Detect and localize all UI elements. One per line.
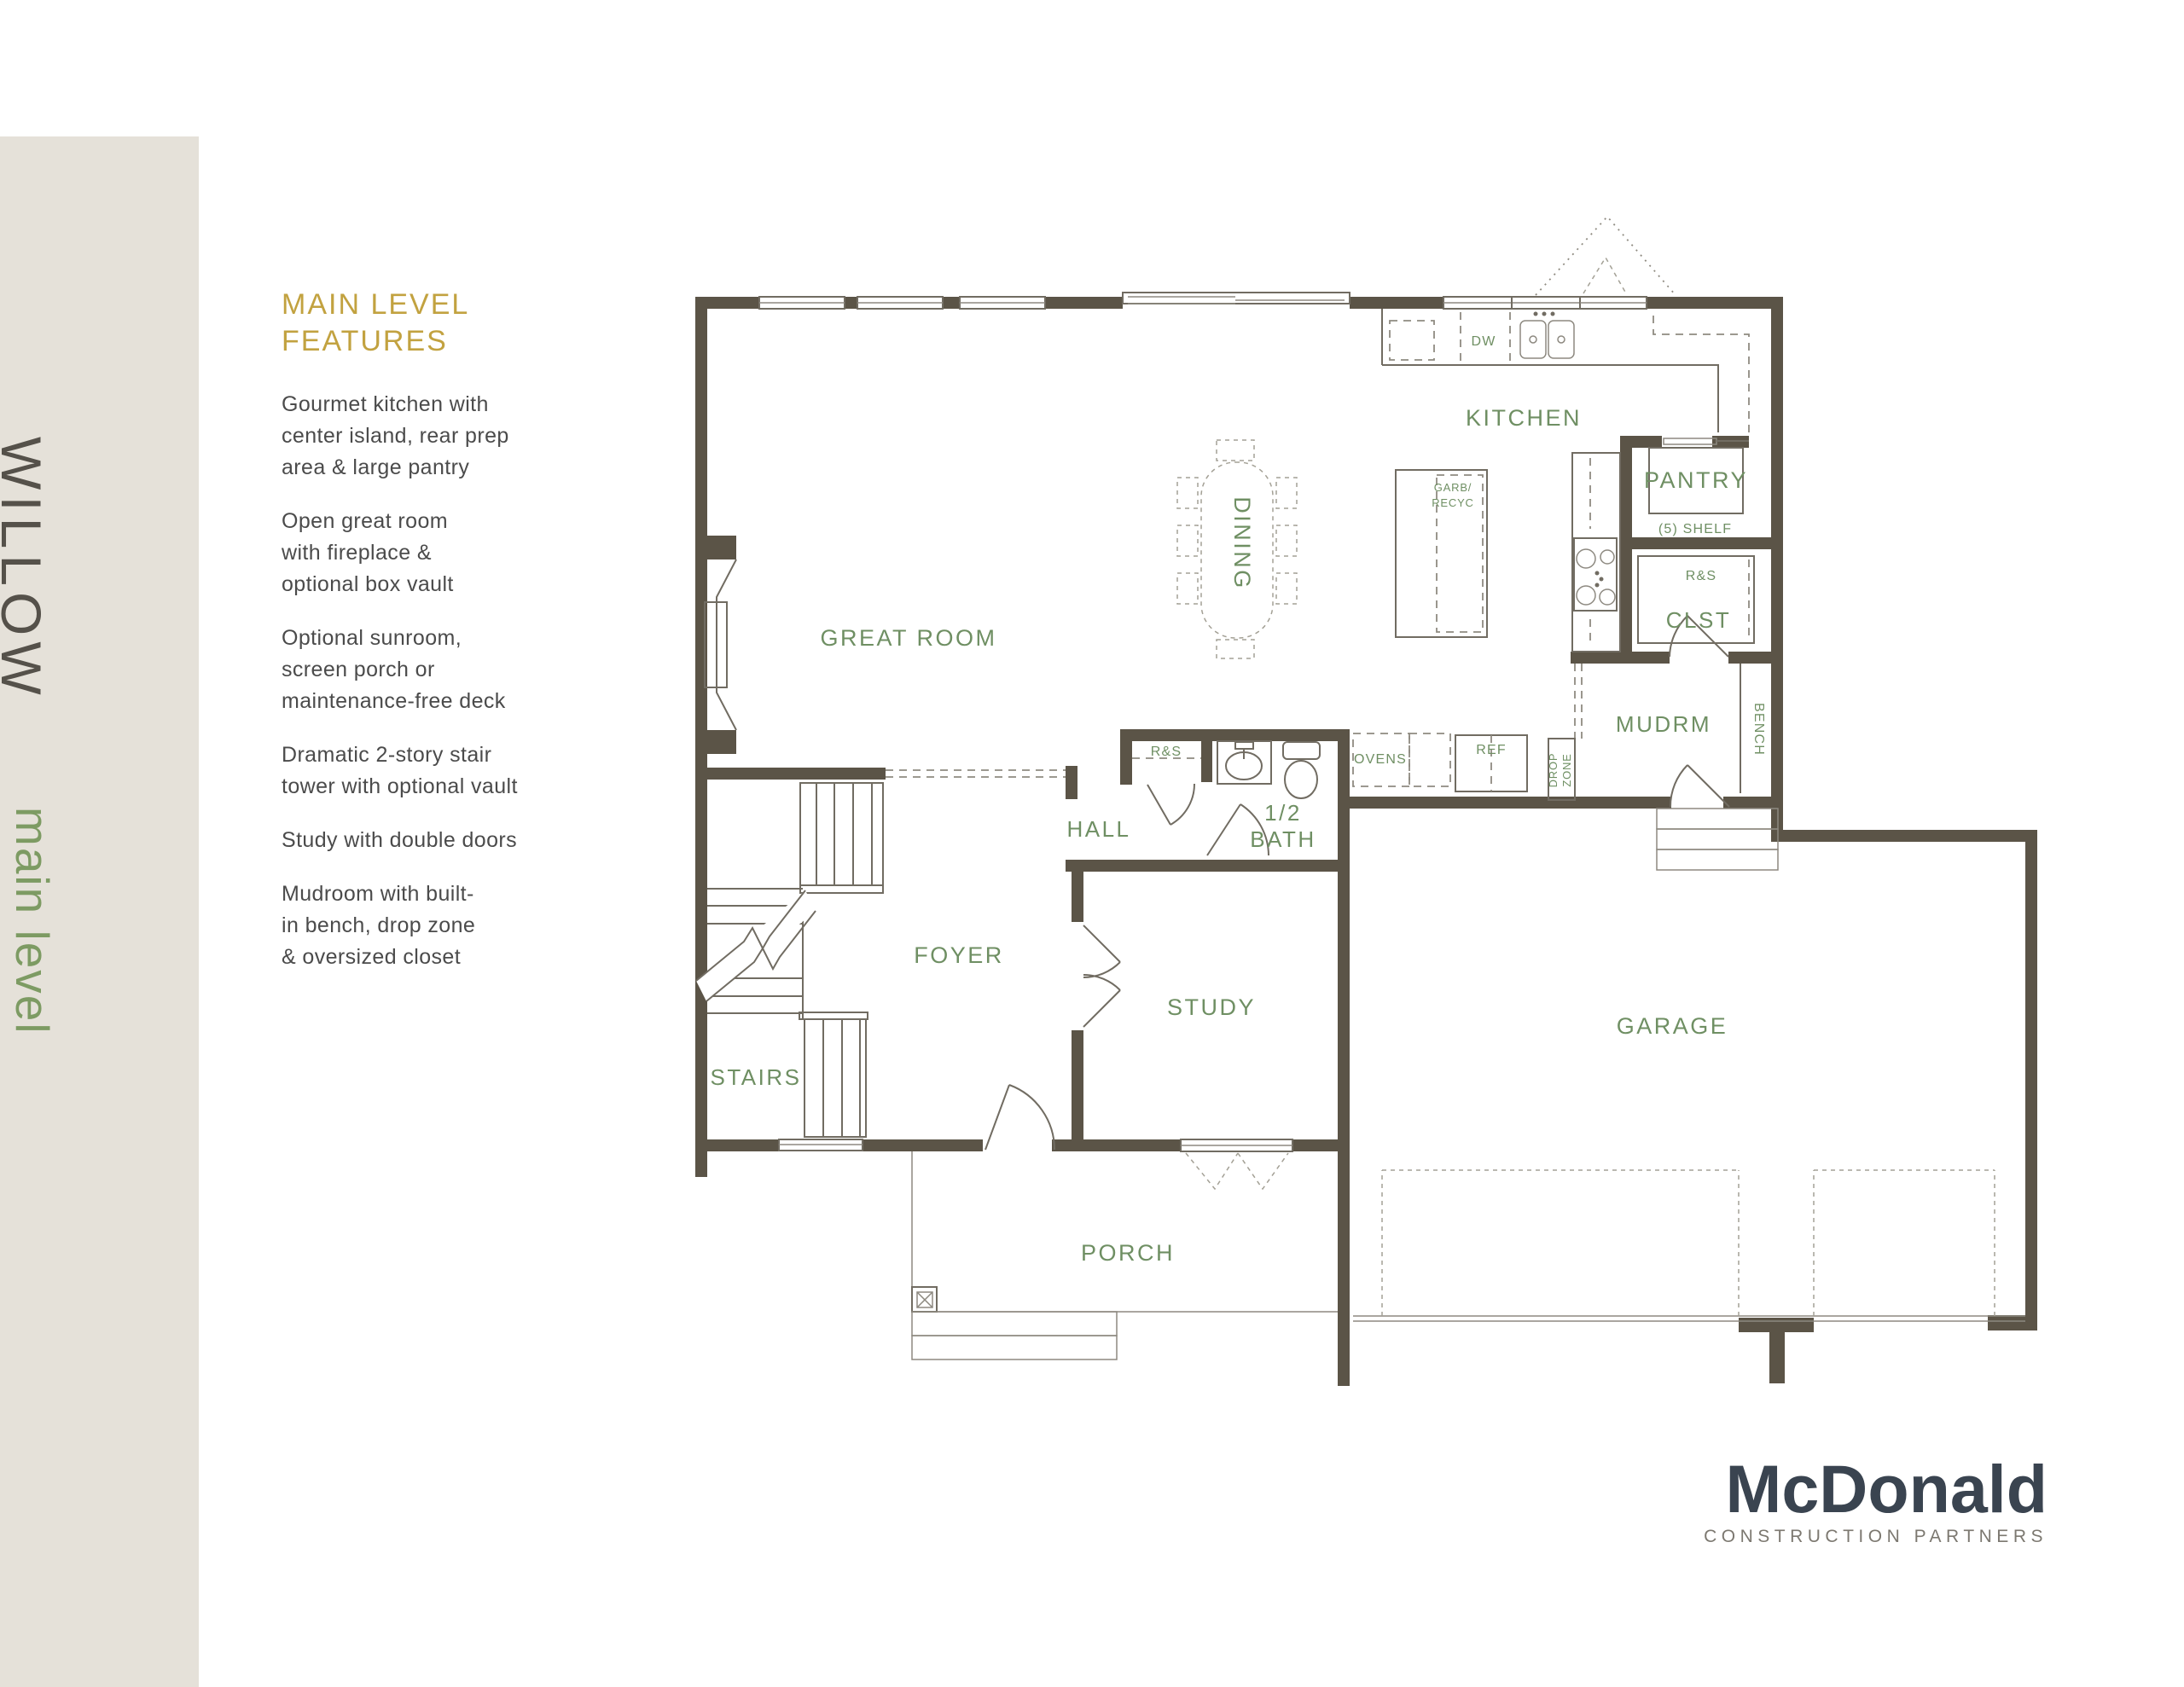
great-room-window [857, 297, 943, 309]
garage-door-bay [1814, 1170, 1995, 1316]
feature-item: Mudroom with built- in bench, drop zone … [282, 878, 682, 973]
cooktop [1572, 453, 1620, 652]
great-room-window [759, 297, 845, 309]
garbage-recycle-label: RECYC [1432, 496, 1474, 509]
closet-label: CLST [1666, 607, 1731, 633]
mudroom [1657, 664, 1778, 870]
walls [695, 297, 2037, 1386]
hall-label: HALL [1066, 816, 1130, 842]
plan-subtitle: main level [5, 807, 60, 1035]
study-label: STUDY [1167, 994, 1256, 1020]
dishwasher-label: DW [1471, 334, 1496, 349]
study-double-doors [1083, 925, 1120, 1027]
closet-rod-shelf-label: R&S [1686, 569, 1717, 583]
toilet [1283, 742, 1320, 798]
bath-vanity [1217, 741, 1271, 784]
great-room-window [960, 297, 1045, 309]
kitchen-window [1443, 297, 1580, 309]
porch-steps [912, 1312, 1117, 1359]
garage-door-bay [1382, 1170, 1739, 1316]
half-bath-label: 1/2 [1264, 800, 1302, 826]
builder-name: McDonald [1647, 1455, 2047, 1523]
stairs-label: STAIRS [711, 1064, 802, 1090]
drop-zone-label: ZONE [1560, 753, 1573, 786]
feature-item: Open great room with fireplace & optiona… [282, 506, 682, 600]
garage-label: GARAGE [1617, 1013, 1728, 1039]
sidebar: WILLOW main level [0, 136, 199, 1687]
pantry-label: PANTRY [1644, 467, 1748, 493]
mudroom-garage-door [1670, 765, 1729, 807]
feature-item: Optional sunroom, screen porch or mainte… [282, 623, 682, 717]
mudroom-label: MUDRM [1616, 711, 1711, 737]
builder-tagline: CONSTRUCTION PARTNERS [1647, 1527, 2047, 1547]
features-panel: MAIN LEVEL FEATURES Gourmet kitchen with… [282, 287, 682, 995]
foyer-label: FOYER [914, 942, 1004, 968]
garbage-recycle-label: GARB/ [1434, 481, 1472, 494]
hall-closet-door [1147, 784, 1194, 825]
cased-openings [886, 664, 1582, 777]
half-bath-label: BATH [1250, 826, 1316, 852]
garage-steps [1657, 809, 1778, 870]
feature-item: Gourmet kitchen with center island, rear… [282, 389, 682, 484]
ovens-label: OVENS [1354, 752, 1407, 767]
staircase [696, 783, 883, 1151]
porch-label: PORCH [1081, 1240, 1175, 1266]
great-room-label: GREAT ROOM [820, 625, 996, 651]
hall-closet-label: R&S [1151, 745, 1182, 759]
refrigerator-label: REF [1476, 743, 1507, 757]
feature-item: Study with double doors [282, 825, 682, 856]
dining-label: DINING [1229, 496, 1255, 590]
pantry-shelf-label: (5) SHELF [1658, 522, 1732, 536]
features-heading: MAIN LEVEL FEATURES [282, 287, 682, 360]
brochure-page: WILLOW main level MAIN LEVEL FEATURES Go… [0, 0, 2184, 1687]
dining-sliding-door [1123, 293, 1350, 304]
stair-break-line [696, 890, 816, 1001]
roof-gable-outline [1536, 217, 1676, 295]
floor-plan: GREAT ROOM DINING KITCHEN DW GARB/ RECYC… [665, 188, 2099, 1416]
garage-doors [1353, 1170, 2025, 1321]
porch-column [912, 1287, 937, 1312]
windows [759, 217, 1676, 1189]
builder-logo: McDonald CONSTRUCTION PARTNERS [1647, 1455, 2047, 1547]
hall-closet [1132, 758, 1201, 825]
front-door [985, 1085, 1054, 1150]
rear-door [1580, 258, 1647, 309]
study-window [1181, 1139, 1292, 1189]
kitchen-label: KITCHEN [1466, 405, 1582, 431]
plan-title: WILLOW [0, 437, 54, 701]
feature-item: Dramatic 2-story stair tower with option… [282, 739, 682, 803]
bench-label: BENCH [1751, 703, 1766, 756]
kitchen-island [1396, 470, 1487, 637]
drop-zone-label: DROP [1547, 753, 1560, 788]
kitchen-sink [1520, 312, 1574, 359]
